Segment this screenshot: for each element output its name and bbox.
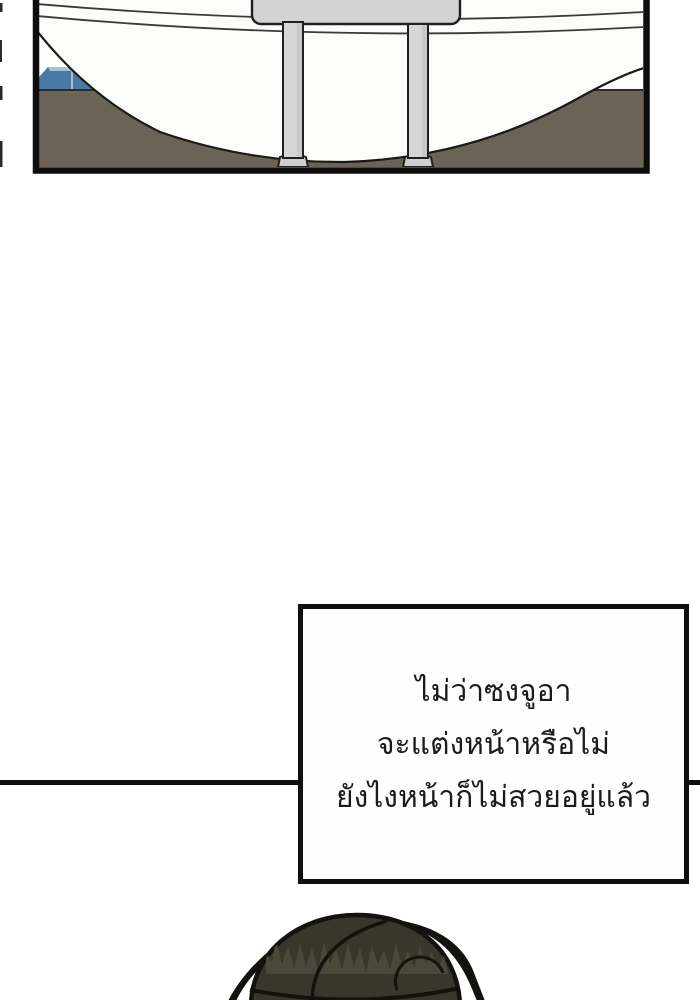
- page-edge-fragments: [0, 3, 3, 167]
- tub-leg-left: [278, 22, 308, 167]
- scene-divider-line-left: [0, 780, 300, 785]
- comic-page: ไม่ว่าซงจูอา จะแต่งหน้าหรือไม่ ยังไงหน้า…: [0, 0, 700, 1000]
- speech-line-1: ไม่ว่าซงจูอา: [415, 665, 571, 718]
- speech-line-3: ยังไงหน้าก็ไม่สวยอยู่แล้ว: [336, 771, 651, 824]
- character-head-illustration: [140, 888, 660, 1000]
- tub-leg-right: [403, 24, 433, 167]
- speech-box: ไม่ว่าซงจูอา จะแต่งหน้าหรือไม่ ยังไงหน้า…: [298, 604, 689, 884]
- top-panel-illustration: [0, 0, 700, 180]
- tub-pedestal: [252, 0, 460, 24]
- speech-line-2: จะแต่งหน้าหรือไม่: [377, 718, 610, 771]
